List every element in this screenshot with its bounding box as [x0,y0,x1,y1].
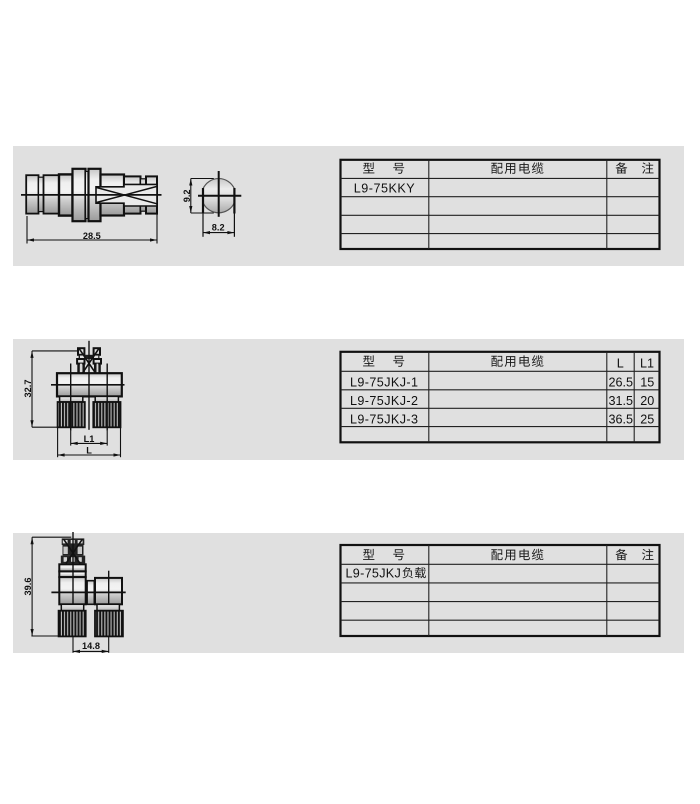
svg-text:8.2: 8.2 [212,222,225,232]
svg-text:15: 15 [640,376,654,390]
svg-text:31.5: 31.5 [609,394,634,408]
svg-text:L1: L1 [84,434,95,444]
svg-text:20: 20 [640,394,654,408]
svg-text:28.5: 28.5 [83,231,101,241]
svg-text:L9-75JKJ-3: L9-75JKJ-3 [350,412,418,426]
svg-text:32.7: 32.7 [23,380,33,398]
svg-text:25: 25 [640,412,654,426]
svg-text:26.5: 26.5 [609,376,634,390]
svg-text:L: L [86,445,92,455]
svg-text:L9-75KKY: L9-75KKY [354,181,416,195]
svg-text:36.5: 36.5 [609,412,634,426]
svg-text:9.2: 9.2 [182,190,192,203]
svg-text:39.6: 39.6 [23,578,33,596]
svg-text:L9-75JKJ: L9-75JKJ [346,566,402,580]
svg-text:L1: L1 [640,356,654,370]
svg-text:L9-75JKJ-1: L9-75JKJ-1 [350,376,418,390]
svg-text:14.8: 14.8 [82,641,100,651]
svg-text:L: L [617,356,624,370]
svg-text:L9-75JKJ-2: L9-75JKJ-2 [350,394,418,408]
